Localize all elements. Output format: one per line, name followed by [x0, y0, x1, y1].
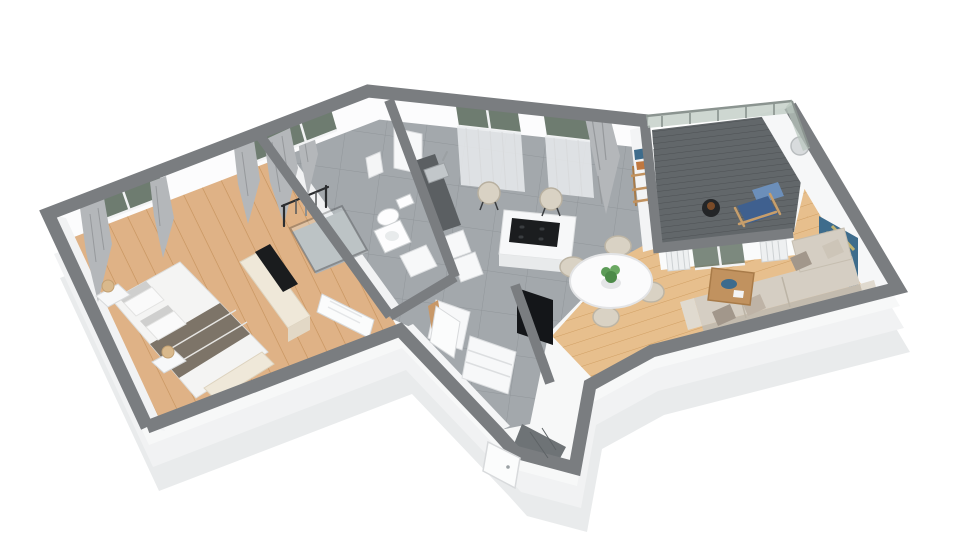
- radiator-right: [760, 239, 788, 262]
- stool-seat: [540, 188, 562, 210]
- stool-seat: [478, 182, 500, 204]
- floor-plan-svg: [0, 0, 960, 540]
- blue-decor-tray: [721, 279, 737, 289]
- balcony-side-table: [702, 199, 720, 217]
- coffee-table: [708, 268, 754, 305]
- entry-door-handle: [506, 465, 510, 469]
- white-book: [733, 290, 744, 298]
- table-item: [707, 202, 715, 210]
- basin-bowl: [385, 231, 399, 241]
- plant-leaf-3: [605, 271, 617, 283]
- dining-chair-north: [605, 236, 631, 256]
- ball-lamp: [102, 280, 114, 292]
- floor-plan-canvas: [0, 0, 960, 540]
- dining-chair-south: [593, 307, 619, 327]
- ball-lamp: [162, 346, 174, 358]
- kitchen-window-1: [455, 100, 525, 192]
- cooktop: [509, 218, 560, 247]
- radiator-left: [666, 249, 690, 271]
